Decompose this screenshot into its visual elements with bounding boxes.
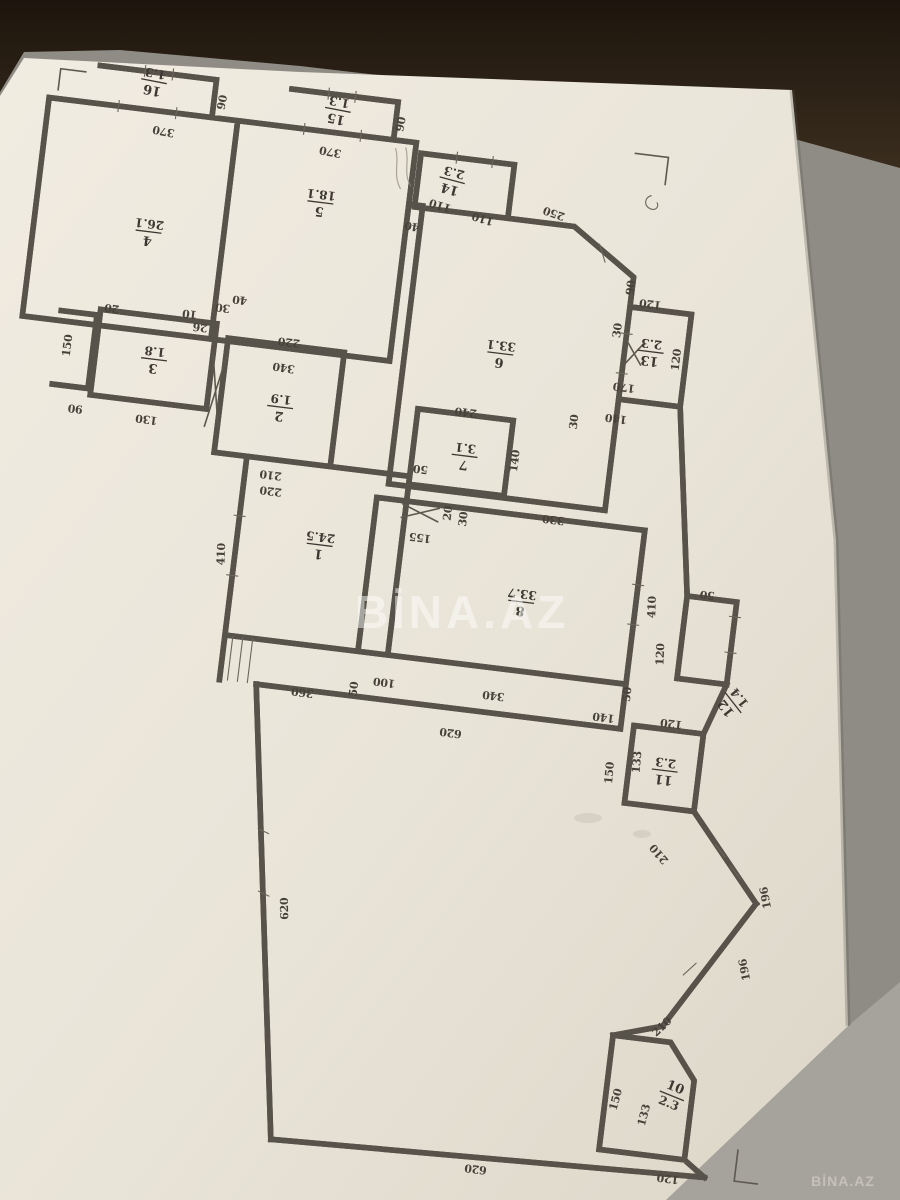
photo-of-floor-plan: 3709037090340110110402509012030170140301… <box>0 0 900 1200</box>
room-number: 4 <box>142 232 153 248</box>
dimension-label: 150 <box>60 333 76 357</box>
dimension-label: 330 <box>541 512 565 528</box>
room-number: 7 <box>458 456 469 472</box>
dimension-label: 410 <box>645 595 659 618</box>
dimension-label: 10 <box>181 306 198 321</box>
dimension-label: 170 <box>612 379 636 395</box>
room-number: 2 <box>274 407 285 423</box>
dimension-label: 30 <box>456 510 471 527</box>
floor-plan-canvas: 3709037090340110110402509012030170140301… <box>0 0 900 1200</box>
room-area: 1.8 <box>144 343 166 359</box>
dimension-label: 620 <box>438 725 462 741</box>
dimension-label: 210 <box>258 467 282 483</box>
paper-stain <box>633 830 651 838</box>
dimension-label: 620 <box>463 1161 487 1177</box>
dimension-label: 100 <box>372 674 396 690</box>
room-number: 5 <box>314 203 325 219</box>
dimension-label: 50 <box>412 462 429 477</box>
dimension-label: 120 <box>653 643 667 666</box>
room-number: 1 <box>313 545 324 561</box>
watermark-corner: BİNA.AZ <box>811 1173 875 1189</box>
dimension-label: 220 <box>277 334 301 350</box>
dimension-label: 90 <box>67 401 84 416</box>
dimension-label: 133 <box>630 751 645 774</box>
dimension-label: 120 <box>656 1171 680 1187</box>
dimension-label: 40 <box>231 292 248 307</box>
dimension-label: 26 <box>192 320 209 335</box>
room-area: 1.9 <box>270 391 292 407</box>
room-number: 3 <box>148 360 159 376</box>
paper-stain <box>574 813 602 823</box>
dimension-label: 20 <box>103 301 120 316</box>
room-number: 11 <box>654 770 674 787</box>
dimension-label: 30 <box>567 413 582 430</box>
dimension-label: 50 <box>699 588 716 603</box>
room-area: 2.3 <box>640 336 662 352</box>
dimension-label: 140 <box>507 449 523 473</box>
dimension-label: 140 <box>604 411 628 427</box>
room-number: 6 <box>494 354 505 370</box>
room-area: 3.1 <box>454 440 476 456</box>
dimension-label: 120 <box>659 716 683 732</box>
dimension-label: 155 <box>409 530 432 546</box>
dimension-label: 410 <box>214 542 228 565</box>
room-number: 13 <box>640 352 660 369</box>
watermark-center: BİNA.AZ <box>355 586 570 638</box>
dimension-label: 360 <box>290 684 314 700</box>
room-area: 2.3 <box>654 754 676 770</box>
dimension-label: 340 <box>481 688 505 704</box>
dimension-label: 50 <box>620 686 635 703</box>
dimension-label: 240 <box>454 404 478 420</box>
dimension-label: 150 <box>602 761 617 785</box>
dimension-label: 50 <box>346 680 361 697</box>
dimension-label: 220 <box>258 483 282 499</box>
dimension-label: 620 <box>278 897 291 920</box>
dimension-label: 30 <box>610 322 625 339</box>
dimension-label: 120 <box>638 296 662 312</box>
dimension-label: 30 <box>214 300 231 315</box>
dimension-label: 20 <box>441 505 456 522</box>
dimension-label: 140 <box>591 709 615 725</box>
dimension-label: 90 <box>623 279 638 296</box>
dimension-label: 130 <box>134 411 158 427</box>
dimension-label: 120 <box>669 348 685 372</box>
